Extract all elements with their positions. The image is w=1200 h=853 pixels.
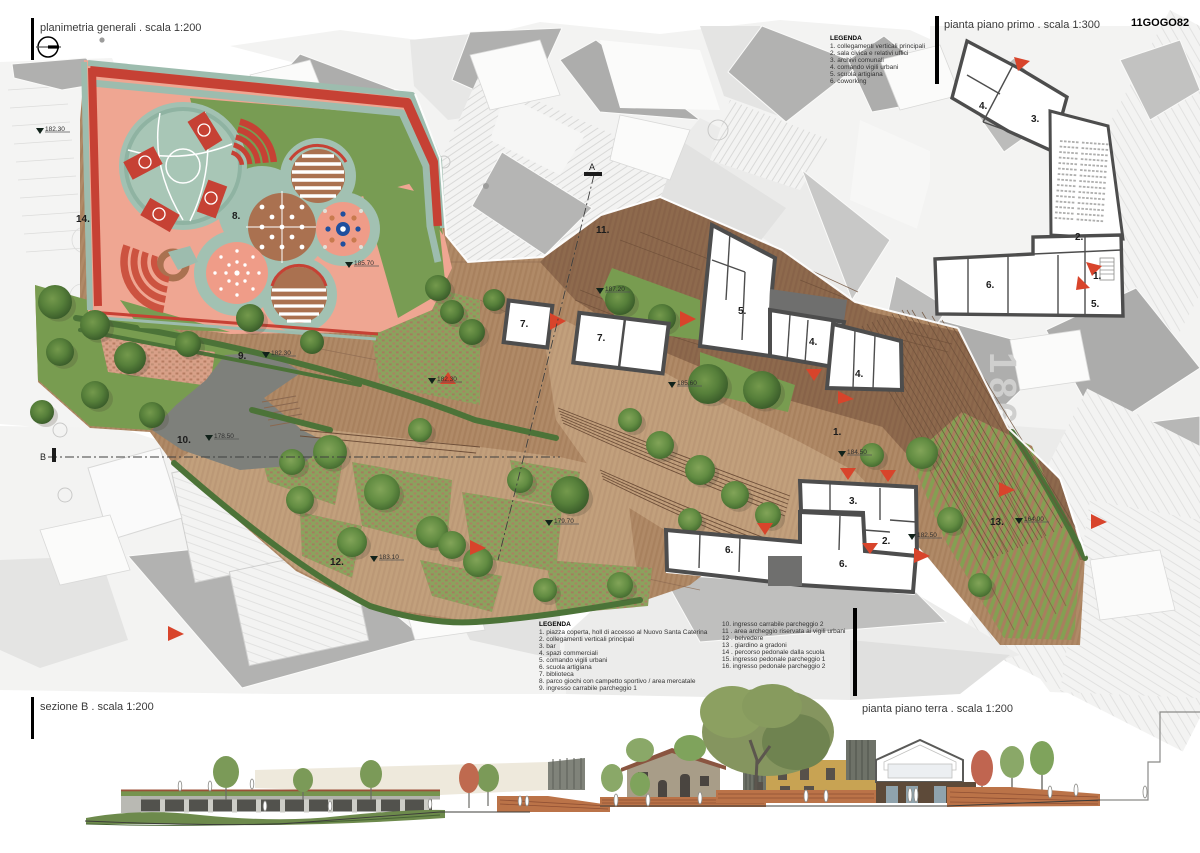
svg-text:4.: 4. [809, 337, 818, 348]
svg-text:5. scuola artigiana: 5. scuola artigiana [830, 71, 883, 78]
svg-text:7.: 7. [597, 333, 606, 344]
svg-text:11 . area archeggio riservata: 11 . area archeggio riservata ai vigili … [722, 628, 845, 635]
svg-text:3. archivi comunali: 3. archivi comunali [830, 57, 884, 64]
svg-text:1. collegamenti verticali prin: 1. collegamenti verticali principali [830, 43, 925, 50]
svg-text:8. parco giochi con campetto s: 8. parco giochi con campetto sportivo / … [539, 678, 696, 685]
svg-text:4. comando vigili urbani: 4. comando vigili urbani [830, 64, 898, 71]
svg-text:6. coworking: 6. coworking [830, 78, 867, 85]
svg-text:9. ingresso carrabile parchegg: 9. ingresso carrabile parcheggio 1 [539, 685, 637, 692]
svg-text:13.: 13. [990, 517, 1004, 528]
svg-text:pianta piano terra . scala 1:2: pianta piano terra . scala 1:200 [862, 703, 1013, 715]
svg-text:3. bar: 3. bar [539, 643, 556, 650]
svg-text:B: B [40, 452, 46, 462]
svg-text:planimetria generali . scala 1: planimetria generali . scala 1:200 [40, 22, 201, 34]
svg-text:2. sala civica e relativi uffi: 2. sala civica e relativi uffici [830, 50, 908, 57]
svg-text:11.: 11. [596, 225, 610, 236]
svg-text:12.: 12. [330, 557, 344, 568]
svg-text:9.: 9. [238, 351, 247, 362]
svg-text:6.: 6. [839, 559, 848, 570]
svg-text:2. collegamenti verticali prin: 2. collegamenti verticali principali [539, 636, 634, 643]
svg-text:11GOGO82: 11GOGO82 [1131, 17, 1189, 29]
svg-text:5. comando vigili urbani: 5. comando vigili urbani [539, 657, 607, 664]
svg-text:7.: 7. [520, 319, 529, 330]
svg-text:2.: 2. [882, 536, 891, 547]
svg-text:10.: 10. [177, 435, 191, 446]
svg-text:pianta piano primo . scala 1:3: pianta piano primo . scala 1:300 [944, 19, 1100, 31]
svg-text:A: A [589, 162, 595, 172]
svg-text:10. ingresso carrabile parcheg: 10. ingresso carrabile parcheggio 2 [722, 621, 824, 628]
svg-text:15. ingresso pedonale parchegg: 15. ingresso pedonale parcheggio 1 [722, 656, 826, 663]
svg-text:8.: 8. [232, 211, 241, 222]
svg-text:1.: 1. [833, 427, 842, 438]
svg-text:1.: 1. [1093, 271, 1102, 282]
svg-text:6. scuola artigiana: 6. scuola artigiana [539, 664, 592, 671]
svg-text:LEGENDA: LEGENDA [539, 621, 571, 628]
svg-text:7. biblioteca: 7. biblioteca [539, 671, 574, 678]
svg-text:4. spazi commerciali: 4. spazi commerciali [539, 650, 598, 657]
svg-text:13 . giardino a gradoni: 13 . giardino a gradoni [722, 642, 787, 649]
svg-text:5.: 5. [738, 306, 747, 317]
svg-text:4.: 4. [979, 101, 988, 112]
svg-text:sezione B . scala 1:200: sezione B . scala 1:200 [40, 701, 154, 713]
svg-text:6.: 6. [725, 545, 734, 556]
svg-text:2.: 2. [1075, 232, 1084, 243]
svg-text:12 . belvedere: 12 . belvedere [722, 635, 764, 642]
svg-text:6.: 6. [986, 280, 995, 291]
svg-text:LEGENDA: LEGENDA [830, 35, 862, 42]
svg-text:3.: 3. [1031, 114, 1040, 125]
svg-text:4.: 4. [855, 369, 864, 380]
svg-text:1. piazza coperta, holl di acc: 1. piazza coperta, holl di accesso al Nu… [539, 629, 708, 636]
svg-text:3.: 3. [849, 496, 858, 507]
svg-text:5.: 5. [1091, 299, 1100, 310]
svg-text:16. ingresso pedonale parchegg: 16. ingresso pedonale parcheggio 2 [722, 663, 826, 670]
svg-text:14 . percorso pedonale dalla s: 14 . percorso pedonale dalla scuola [722, 649, 825, 656]
svg-text:14.: 14. [76, 214, 90, 225]
